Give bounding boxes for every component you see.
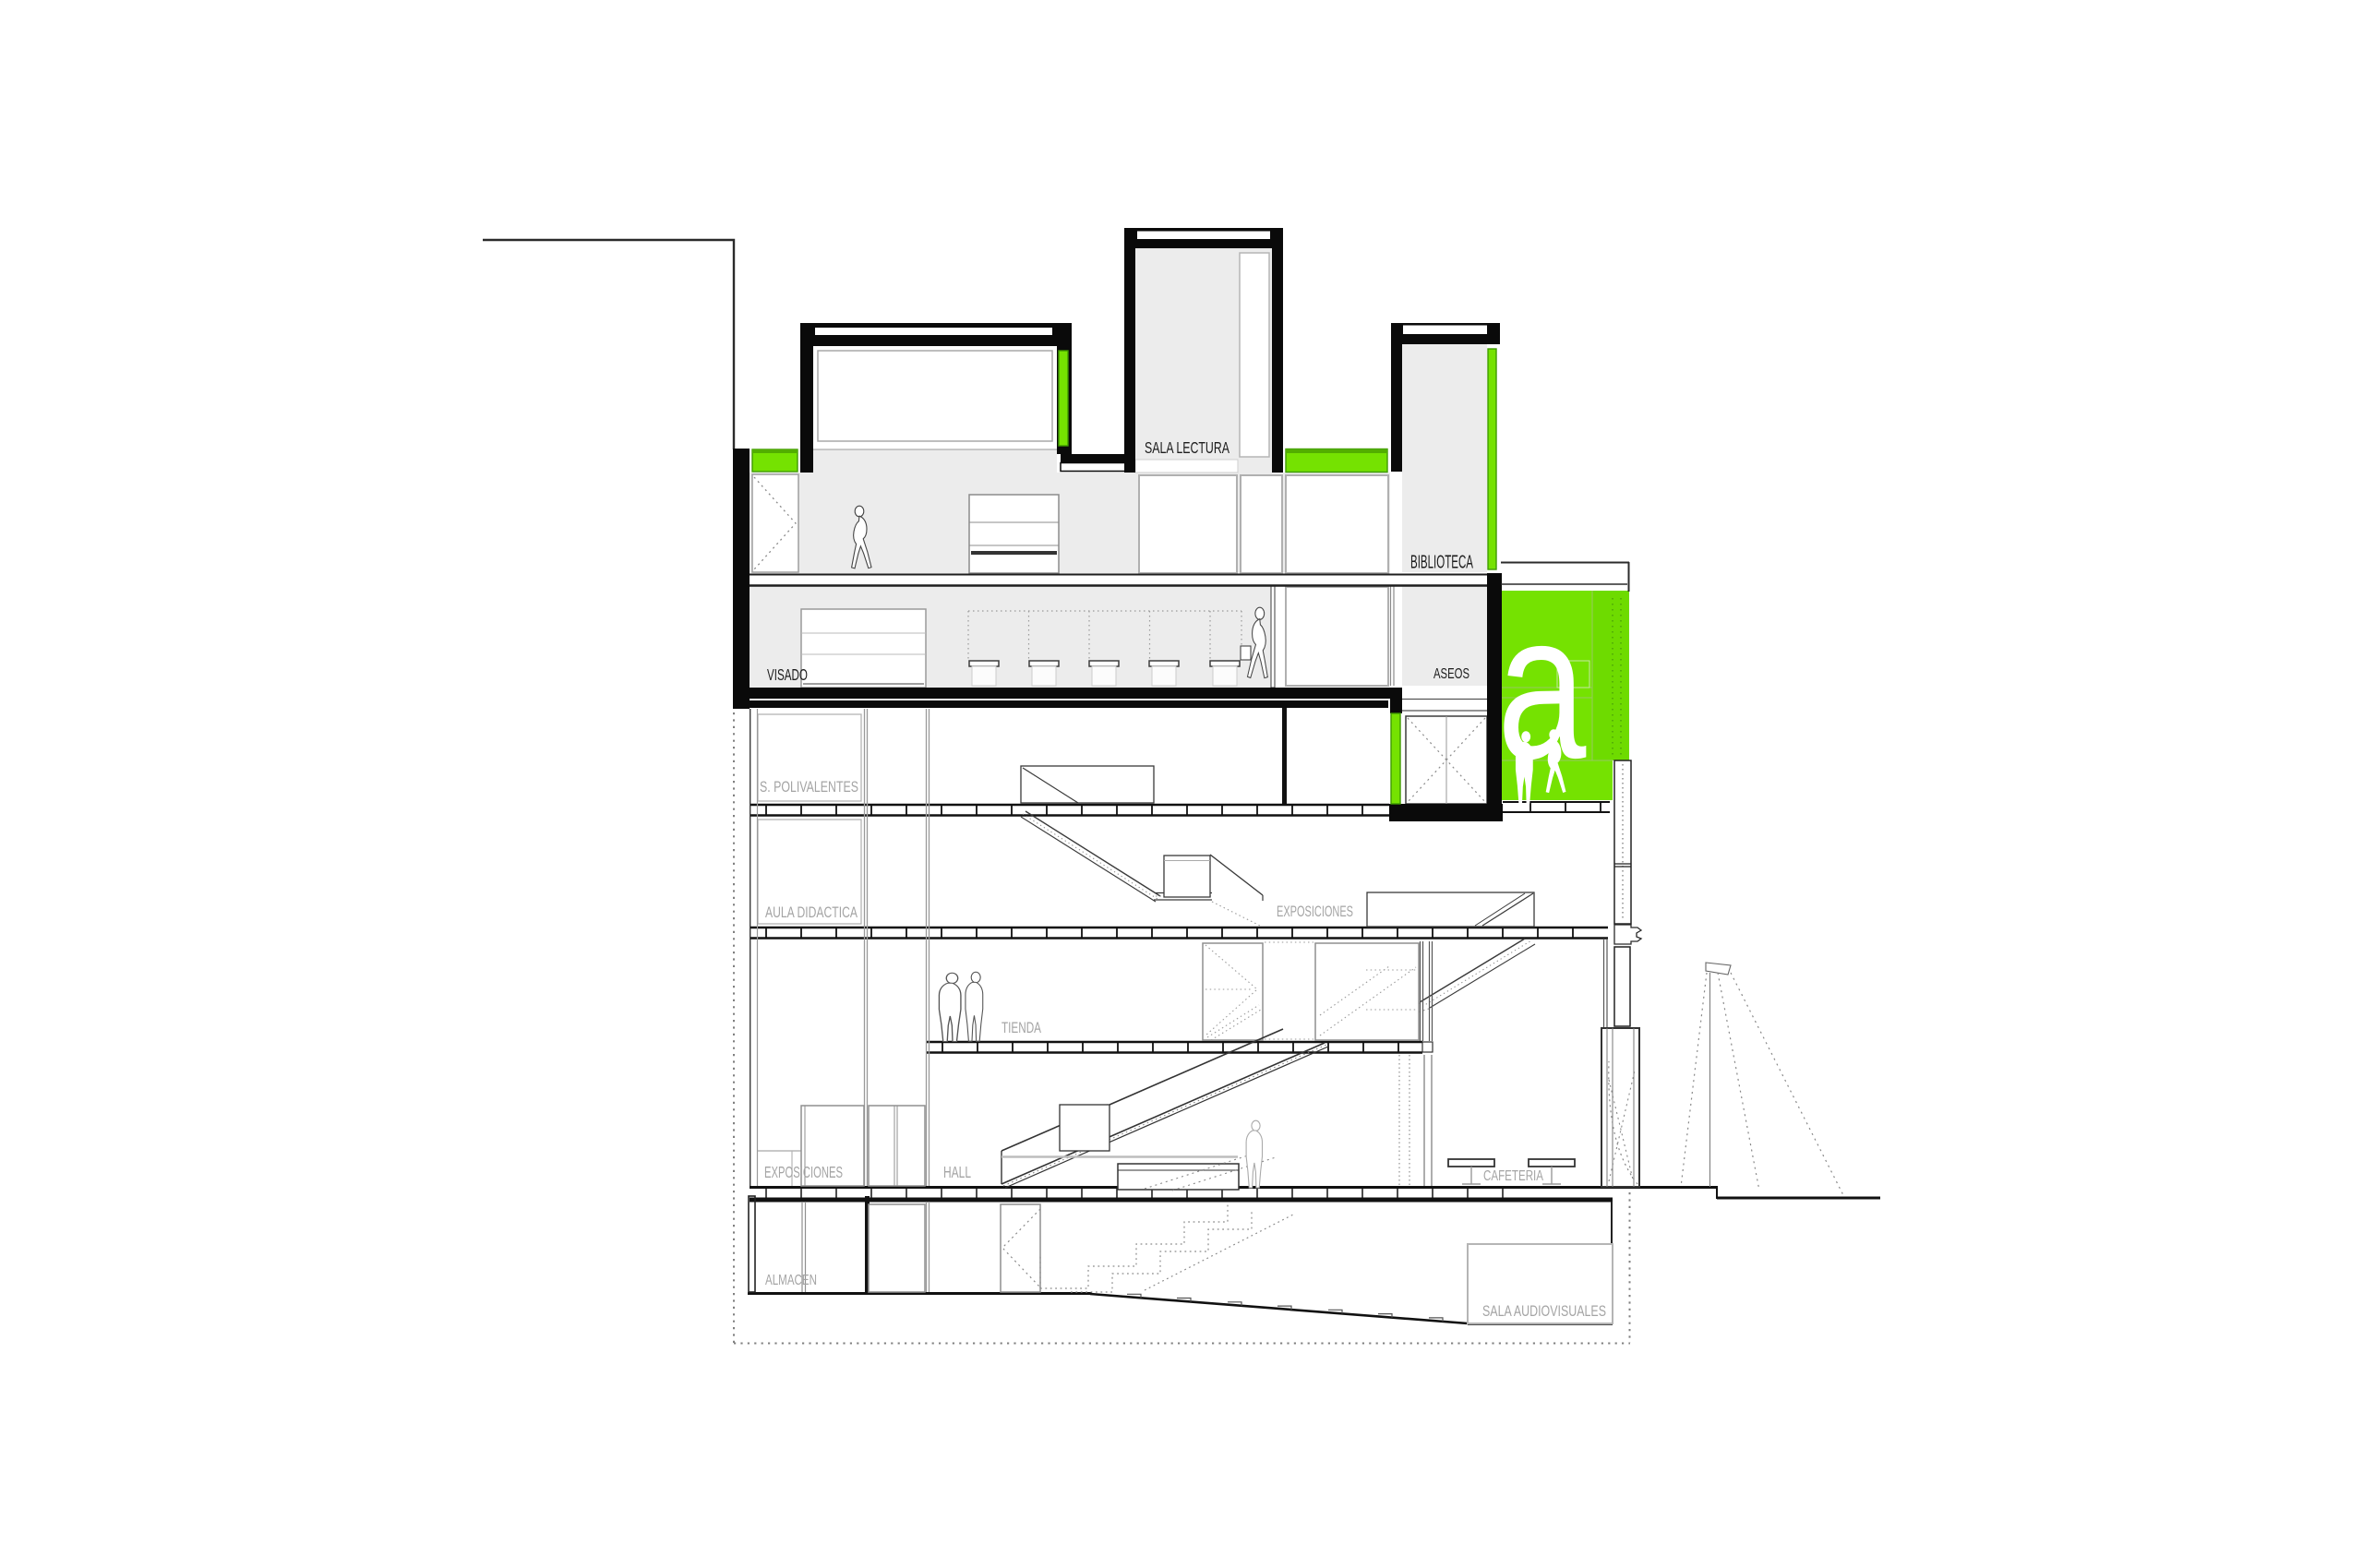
- svg-text:EXPOSICIONES: EXPOSICIONES: [764, 1163, 843, 1181]
- svg-text:ALMACEN: ALMACEN: [765, 1273, 817, 1288]
- svg-text:SALA LECTURA: SALA LECTURA: [1145, 438, 1229, 457]
- svg-text:ASEOS: ASEOS: [1433, 666, 1469, 682]
- svg-text:EXPOSICIONES: EXPOSICIONES: [1277, 903, 1353, 920]
- svg-text:S. POLIVALENTES: S. POLIVALENTES: [760, 779, 858, 796]
- svg-text:AULA DIDACTICA: AULA DIDACTICA: [765, 904, 858, 921]
- svg-text:CAFETERIA: CAFETERIA: [1483, 1168, 1543, 1184]
- svg-text:SALA AUDIOVISUALES: SALA AUDIOVISUALES: [1482, 1303, 1606, 1320]
- svg-text:HALL: HALL: [943, 1163, 971, 1181]
- svg-text:TIENDA: TIENDA: [1002, 1019, 1041, 1036]
- svg-text:VISADO: VISADO: [767, 665, 808, 684]
- svg-text:BIBLIOTECA: BIBLIOTECA: [1410, 553, 1473, 573]
- svg-text:a: a: [1497, 569, 1587, 802]
